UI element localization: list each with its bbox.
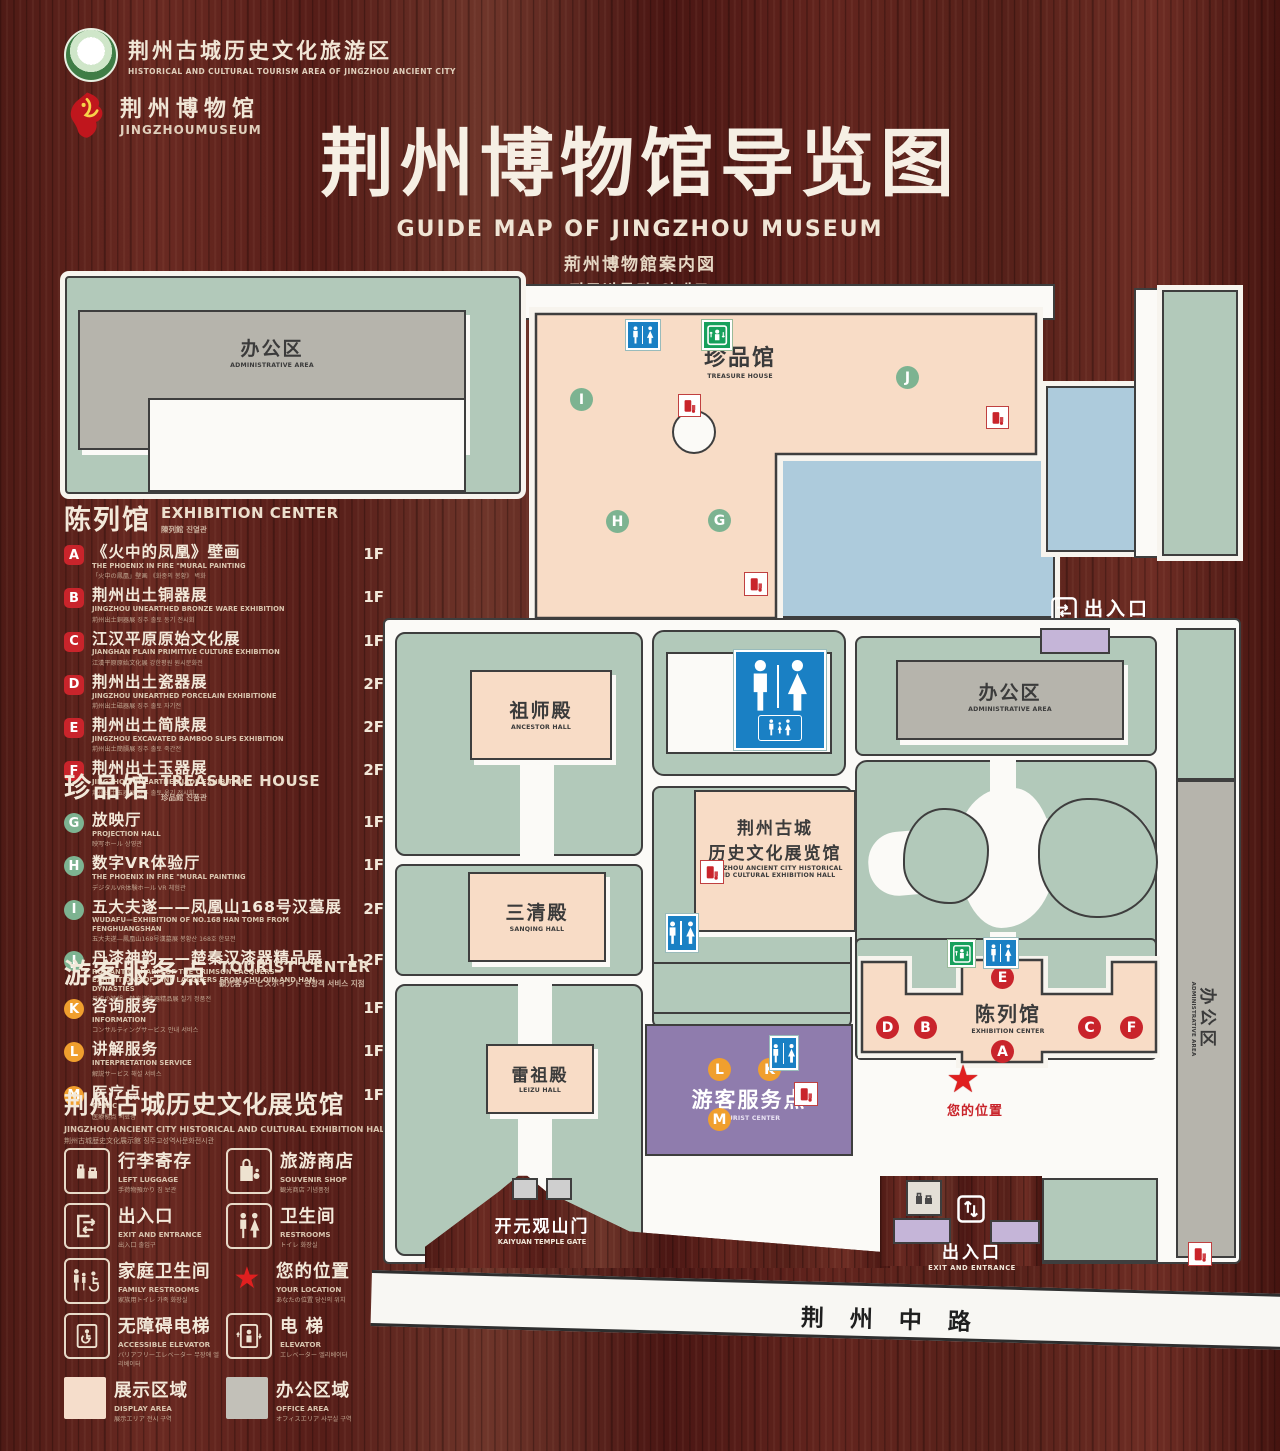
legend-family-restrooms: 家庭卫生间 FAMILY RESTROOMS 家族用トイレ 가족 화장실 [64,1258,222,1304]
marker-badge-h: H [64,856,84,876]
map-garden-island-w [903,808,989,904]
gate-pillar [546,1178,572,1200]
exit-entrance-icon [64,1203,110,1249]
icon-legend: 行李寄存 LEFT LUGGAGE 手荷物預かり 짐 보관 旅游商店 SOUVE… [64,1148,394,1423]
map-pond-east [1046,386,1148,552]
map-green-se [1042,1178,1158,1262]
map-building-admin-strip: 办公区 ADMINISTRATIVE AREA [1176,780,1236,1258]
restroom-icon [666,914,698,952]
map-marker-m: M [708,1108,731,1131]
your-location-label: 您的位置 [930,1100,1020,1119]
fire-extinguisher-icon [794,1082,818,1106]
exit-entrance-icon [956,1194,986,1224]
elevator-icon [948,940,975,967]
map-marker-j: J [896,366,919,389]
marker-badge-c: C [64,632,84,652]
page-title-en: GUIDE MAP OF JINGZHOU MUSEUM [290,217,990,242]
marker-badge-i: I [64,900,84,920]
marker-badge-b: B [64,588,84,608]
your-location-star-icon: ★ [226,1258,268,1300]
restroom-icon [626,320,660,350]
map-path [518,984,552,1044]
map-marker-g: G [708,509,731,532]
map-marker-d: D [876,1016,899,1039]
list-item: G 放映厅 PROJECTION HALL 映写ホール 상영관 1F [64,812,384,848]
marker-badge-k: K [64,999,84,1019]
tourism-area-name: 荆州古城历史文化旅游区 [128,35,456,65]
map-marker-b: B [914,1016,937,1039]
family-restroom-icon [64,1258,110,1304]
fire-extinguisher-icon [678,394,701,417]
map-path [990,760,1016,794]
museum-logo: 荆州博物馆 JINGZHOUMUSEUM [64,88,262,140]
legend-section-exhibition-center: 陈列馆 EXHIBITION CENTER 陳列館 진열관 A 《火中的凤凰》壁… [64,498,384,797]
phoenix-bird-icon [64,88,110,140]
page-title-ja: 荊州博物館案内図 [290,250,990,275]
map-building-tourist-center: 游客服务点 TOURIST CENTER [645,1024,853,1156]
museum-name-en: JINGZHOUMUSEUM [120,123,262,137]
restroom-family-icon [734,650,826,750]
road-jingzhou-middle: 荆州中路 [371,1270,1280,1350]
fire-extinguisher-icon [700,860,724,884]
family-restroom-icon [758,715,802,741]
marker-badge-a: A [64,545,84,565]
legend-accessible-elevator: 无障碍电梯 ACCESSIBLE ELEVATOR バリアフリーエレベーター 무… [64,1313,222,1368]
map-green-strip-e [1176,628,1236,780]
list-item: C 江汉平原原始文化展 JIANGHAN PLAIN PRIMITIVE CUL… [64,631,384,667]
legend-exit-entrance: 出入口 EXIT AND ENTRANCE 出入口 출입구 [64,1203,222,1249]
map-gate-lavender [1040,628,1110,654]
title-block: 荆州博物馆导览图 GUIDE MAP OF JINGZHOU MUSEUM 荊州… [290,104,990,301]
list-item: B 荆州出土铜器展 JINGZHOU UNEARTHED BRONZE WARE… [64,587,384,623]
accessible-elevator-icon [64,1313,110,1359]
elevator-icon [702,320,732,350]
left-luggage-icon [906,1180,942,1216]
office-area-swatch [226,1377,268,1419]
tourism-area-logo: 荆州古城历史文化旅游区 HISTORICAL AND CULTURAL TOUR… [64,28,456,82]
museum-name: 荆州博物馆 [120,91,262,123]
list-item: D 荆州出土瓷器展 JINGZHOU UNEARTHED PORCELAIN E… [64,674,384,710]
section-title: 陈列馆 [64,498,151,537]
restroom-icon [770,1036,798,1070]
exhibition-hall-heading: 荆州古城历史文化展览馆 JINGZHOU ANCIENT CITY HISTOR… [64,1086,394,1146]
legend-restrooms: 卫生间 RESTROOMS トイレ 화장실 [226,1203,384,1249]
restroom-icon [226,1203,272,1249]
map-building-admin-e: 办公区 ADMINISTRATIVE AREA [896,660,1124,740]
map-marker-h: H [606,510,629,533]
legend-office-area: 办公区域 OFFICE AREA オフィスエリア 사무실 구역 [226,1377,384,1423]
map-marker-e: E [991,966,1014,989]
legend-left-luggage: 行李寄存 LEFT LUGGAGE 手荷物預かり 짐 보관 [64,1148,222,1194]
left-luggage-icon [64,1148,110,1194]
marker-badge-e: E [64,718,84,738]
exit-label-s: 出入口 EXIT AND ENTRANCE [910,1238,1034,1272]
page-title: 荆州博物馆导览图 [290,104,990,211]
legend-display-area: 展示区域 DISPLAY AREA 展示エリア 전시 구역 [64,1377,222,1423]
shopping-bag-icon [226,1148,272,1194]
tourism-area-name-en: HISTORICAL AND CULTURAL TOURISM AREA OF … [128,67,456,76]
list-item: E 荆州出土简牍展 JINGZHOU EXCAVATED BAMBOO SLIP… [64,717,384,753]
marker-badge-d: D [64,675,84,695]
map-marker-i: I [570,388,593,411]
map-building-sanqing-hall: 三清殿 SANQING HALL [468,872,606,962]
exhibition-center-label: 陈列馆 EXHIBITION CENTER [938,998,1078,1035]
road-label: 荆州中路 [801,1298,998,1337]
map-courtyard-nw [148,398,466,492]
restroom-icon [984,938,1018,968]
list-item: L 讲解服务 INTERPRETATION SERVICE 解説サービス 해설 … [64,1041,384,1077]
list-item: K 咨询服务 INFORMATION コンサルティングサービス 안내 서비스 1… [64,998,384,1034]
map-building-ancestor-hall: 祖师殿 ANCESTOR HALL [470,670,612,760]
elevator-icon [226,1313,272,1359]
map-marker-l: L [708,1058,731,1081]
fire-extinguisher-icon [1188,1242,1212,1266]
map-marker-f: F [1120,1016,1143,1039]
fire-extinguisher-icon [744,572,768,596]
legend-your-location: ★ 您的位置 YOUR LOCATION あなたの位置 당신의 위치 [226,1258,384,1304]
guide-map-poster: 荆州古城历史文化旅游区 HISTORICAL AND CULTURAL TOUR… [0,0,1280,1451]
map-green-east [1162,290,1238,556]
marker-badge-l: L [64,1042,84,1062]
legend-elevator: 电 梯 ELEVATOR エレベーター 엘리베이터 [226,1313,384,1368]
fire-extinguisher-icon [986,406,1009,429]
your-location-star-icon: ★ [946,1060,980,1098]
map-path-east [1134,288,1164,558]
list-item: I 五大夫遂——凤凰山168号汉墓展 WUDAFU—EXHIBITION OF … [64,899,384,944]
map-marker-a: A [991,1040,1014,1063]
map-path [520,752,554,856]
marker-badge-g: G [64,813,84,833]
treasure-house-label: 珍品馆 TREASURE HOUSE [660,340,820,380]
map-building-leizu-hall: 雷祖殿 LEIZU HALL [486,1044,594,1114]
map-marker-c: C [1078,1016,1101,1039]
list-item: A 《火中的凤凰》壁画 THE PHOENIX IN FIRE "MURAL P… [64,544,384,580]
tourism-area-logo-icon [64,28,118,82]
display-area-swatch [64,1377,106,1419]
map-green-above-tourist [652,962,852,1014]
list-item: H 数字VR体验厅 THE PHOENIX IN FIRE "MURAL PAI… [64,855,384,891]
legend-souvenir-shop: 旅游商店 SOUVENIR SHOP 観光商店 기념품점 [226,1148,384,1194]
gate-pillar [512,1178,538,1200]
kaiyuan-gate-label: 开元观山门 KAIYUAN TEMPLE GATE [462,1212,622,1246]
